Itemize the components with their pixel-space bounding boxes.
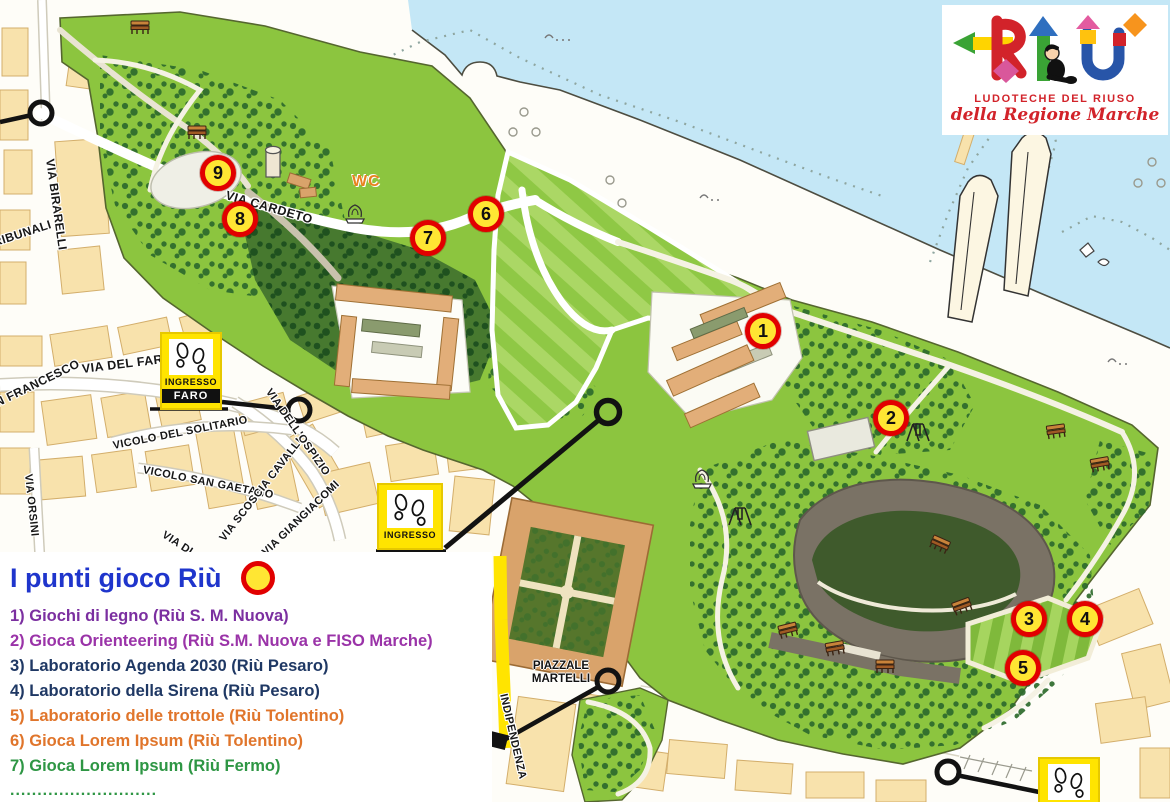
legend-item-1: 1) Giochi di legno (Riù S. M. Nuova) (10, 604, 492, 629)
play-point-sample-icon (241, 561, 275, 595)
play-point-marker-5[interactable]: 5 (1005, 650, 1041, 686)
ingresso-faro-word: INGRESSO (162, 377, 220, 387)
riu-logo: LUDOTECHE DEL RIUSO della Regione Marche (942, 5, 1168, 135)
legend-item-5: 5) Laboratorio delle trottole (Riù Tolen… (10, 704, 492, 729)
riu-logo-art (949, 7, 1161, 87)
legend-item-7: 7) Gioca Lorem Ipsum (Riù Fermo) (10, 754, 492, 779)
wc-label: WC (352, 173, 381, 191)
legend-item-6: 6) Gioca Lorem Ipsum (Riù Tolentino) (10, 729, 492, 754)
legend-ellipsis: ........................... (10, 779, 492, 802)
barracks-west (332, 284, 470, 399)
faro-band: FARO (162, 389, 220, 403)
ingresso-sign-southeast (1038, 757, 1100, 802)
footprints-icon (387, 490, 433, 528)
legend-item-2: 2) Gioca Orienteering (Riù S.M. Nuova e … (10, 629, 492, 654)
logo-line2: della Regione Marche (942, 105, 1168, 125)
legend-title: I punti gioco Riù (10, 563, 221, 594)
piazzale-martelli-label: PIAZZALE MARTELLI (518, 660, 604, 685)
park-map-canvas: VIA BIRARELLI TRIBUNALI VIA CARDETO VIA … (0, 0, 1170, 802)
child-figure (1045, 44, 1077, 84)
ingresso-word: INGRESSO (379, 530, 441, 540)
play-point-marker-4[interactable]: 4 (1067, 601, 1103, 637)
footprints-icon (1048, 764, 1090, 800)
legend-panel: I punti gioco Riù 1) Giochi di legno (Ri… (0, 552, 492, 802)
ingresso-sign: INGRESSO (377, 483, 443, 550)
play-point-marker-9[interactable]: 9 (200, 155, 236, 191)
logo-line1: LUDOTECHE DEL RIUSO (942, 93, 1168, 105)
legend-item-3: 3) Laboratorio Agenda 2030 (Riù Pesaro) (10, 654, 492, 679)
letter-u (1076, 13, 1147, 75)
play-point-marker-7[interactable]: 7 (410, 220, 446, 256)
play-point-marker-2[interactable]: 2 (873, 400, 909, 436)
play-point-marker-3[interactable]: 3 (1011, 601, 1047, 637)
ingresso-faro-sign: INGRESSO FARO (160, 332, 222, 410)
play-point-marker-6[interactable]: 6 (468, 196, 504, 232)
footprints-icon (169, 339, 213, 375)
play-point-marker-8[interactable]: 8 (222, 201, 258, 237)
arrow-block (953, 32, 975, 54)
play-point-marker-1[interactable]: 1 (745, 313, 781, 349)
legend-item-4: 4) Laboratorio della Sirena (Riù Pesaro) (10, 679, 492, 704)
accent-diamond-block (1123, 13, 1147, 37)
